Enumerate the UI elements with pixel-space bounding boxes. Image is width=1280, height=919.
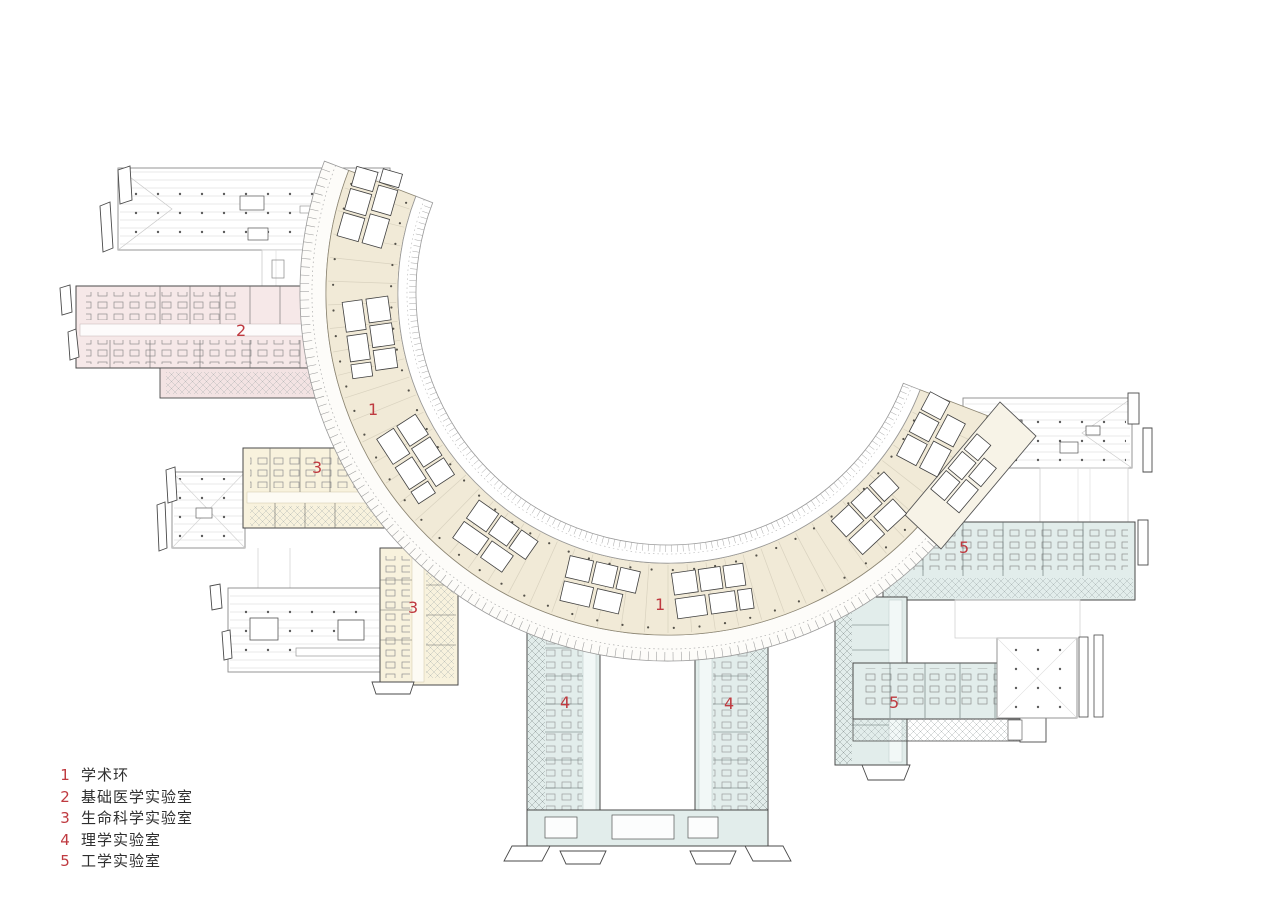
legend-label: 工学实验室: [81, 850, 161, 871]
legend-number: 3: [58, 809, 72, 827]
plan-label-science-east: 4: [724, 694, 734, 713]
floorplan-page: 1 1 2 3 3 4 4 5 5 1 学术环 2 基础医学实验室 3 生命科学…: [0, 0, 1280, 919]
legend-item: 4 理学实验室: [58, 829, 193, 851]
legend-item: 5 工学实验室: [58, 850, 193, 872]
plan-label-basic-medicine: 2: [236, 321, 246, 340]
legend-label: 理学实验室: [81, 829, 161, 850]
legend-item: 3 生命科学实验室: [58, 807, 193, 829]
plan-label-life-science-north: 3: [312, 458, 322, 477]
legend-item: 1 学术环: [58, 764, 193, 786]
plan-label-science-west: 4: [560, 693, 570, 712]
plan-label-ring-south: 1: [655, 595, 665, 614]
hall-southwest: [210, 584, 384, 672]
legend: 1 学术环 2 基础医学实验室 3 生命科学实验室 4 理学实验室 5 工学实验…: [58, 764, 193, 872]
legend-item: 2 基础医学实验室: [58, 786, 193, 808]
legend-number: 4: [58, 831, 72, 849]
legend-number: 2: [58, 788, 72, 806]
plan-label-life-science-south: 3: [408, 598, 418, 617]
legend-number: 1: [58, 766, 72, 784]
legend-label: 基础医学实验室: [81, 786, 193, 807]
plan-label-engineering-south: 5: [889, 693, 899, 712]
legend-number: 5: [58, 852, 72, 870]
plan-label-ring-west: 1: [368, 400, 378, 419]
plan-label-engineering-north: 5: [959, 538, 969, 557]
legend-label: 学术环: [81, 764, 129, 785]
legend-label: 生命科学实验室: [81, 807, 193, 828]
